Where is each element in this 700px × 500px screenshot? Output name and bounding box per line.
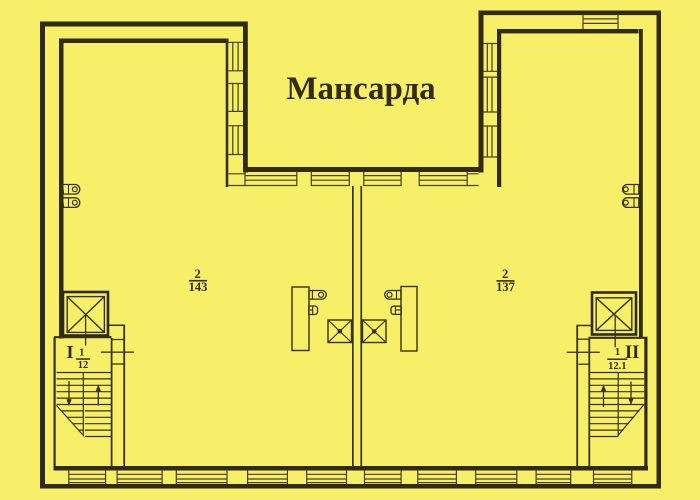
svg-text:2: 2 <box>502 267 508 281</box>
svg-text:Мансарда: Мансарда <box>286 71 435 107</box>
svg-text:12.1: 12.1 <box>608 361 626 372</box>
svg-text:1: 1 <box>615 347 620 358</box>
svg-text:143: 143 <box>189 280 208 294</box>
svg-text:I: I <box>66 342 73 362</box>
svg-text:1: 1 <box>79 348 84 359</box>
svg-text:II: II <box>625 343 639 363</box>
svg-text:137: 137 <box>496 280 515 294</box>
svg-text:2: 2 <box>194 267 200 281</box>
svg-text:12: 12 <box>78 360 89 371</box>
